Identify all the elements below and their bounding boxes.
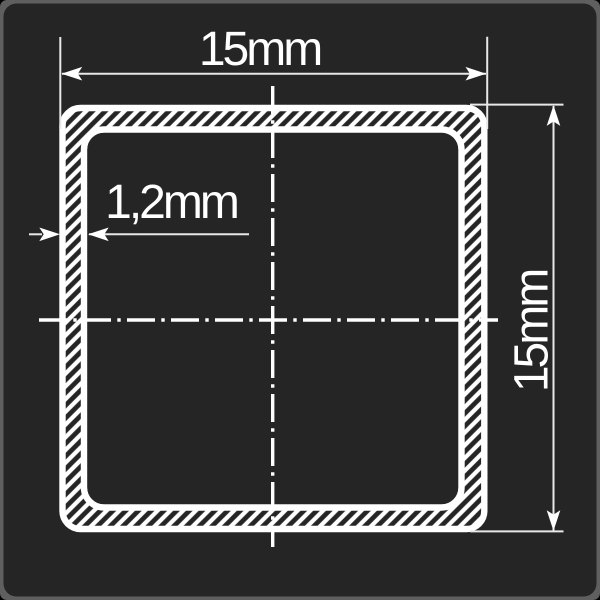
svg-text:15mm: 15mm: [506, 271, 559, 392]
svg-text:1,2mm: 1,2mm: [105, 176, 237, 229]
svg-text:15mm: 15mm: [199, 23, 320, 76]
